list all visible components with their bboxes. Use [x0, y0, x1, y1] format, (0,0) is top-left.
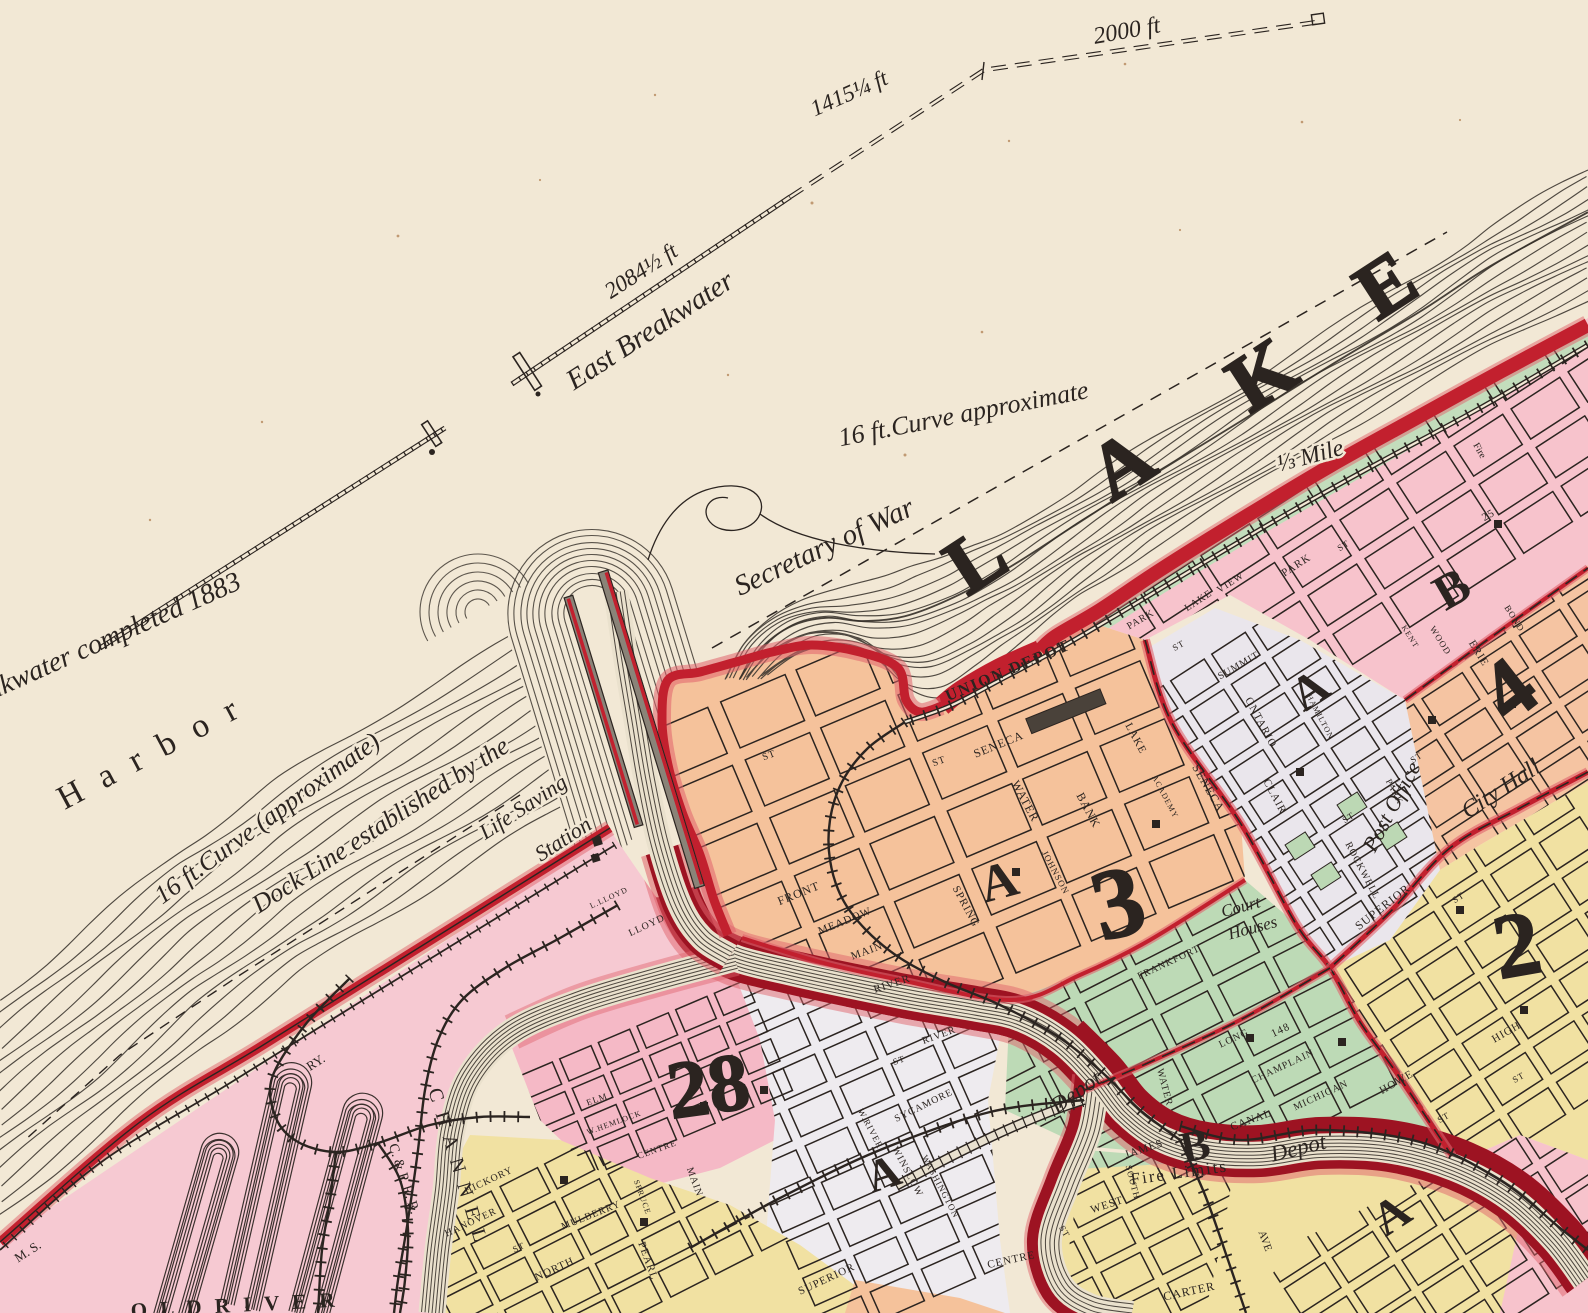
svg-text:28: 28 — [661, 1035, 755, 1137]
